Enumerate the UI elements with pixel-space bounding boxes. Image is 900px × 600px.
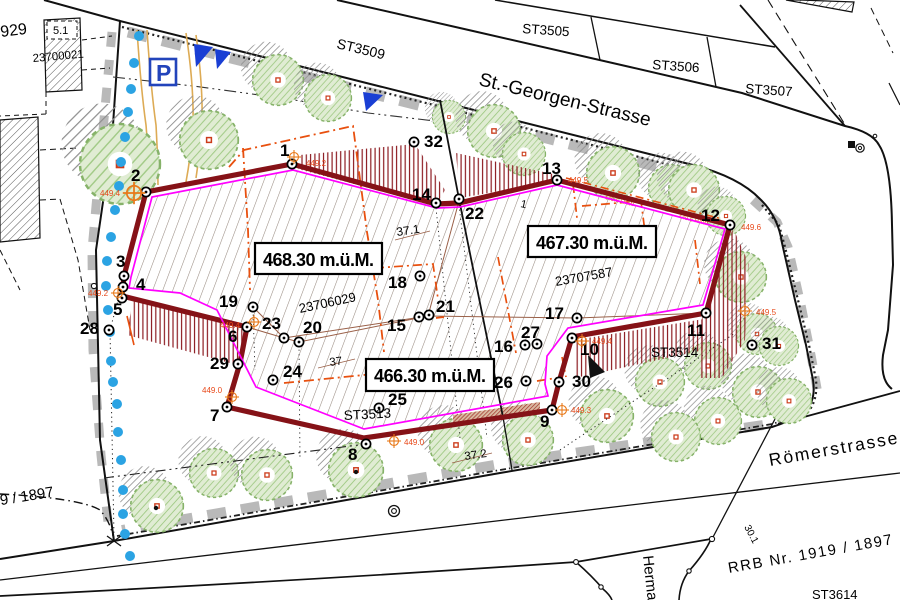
svg-text:30: 30 [572, 372, 591, 391]
svg-text:18: 18 [388, 273, 407, 292]
svg-text:11: 11 [687, 321, 705, 340]
svg-text:467.30 m.ü.M.: 467.30 m.ü.M. [536, 233, 648, 253]
svg-text:468.30 m.ü.M.: 468.30 m.ü.M. [263, 250, 374, 270]
svg-text:28: 28 [80, 319, 99, 338]
svg-text:449.3: 449.3 [571, 406, 592, 415]
svg-text:29: 29 [210, 354, 229, 373]
svg-text:31: 31 [762, 334, 781, 353]
svg-text:449.4: 449.4 [220, 321, 241, 330]
svg-text:2: 2 [131, 166, 140, 185]
svg-text:5.1: 5.1 [53, 25, 68, 37]
svg-text:13: 13 [542, 159, 561, 178]
svg-text:26: 26 [494, 373, 513, 392]
svg-text:24: 24 [283, 362, 302, 381]
svg-text:8: 8 [348, 445, 357, 464]
svg-text:20: 20 [303, 318, 322, 337]
svg-text:ST3514: ST3514 [651, 345, 699, 360]
svg-text:22: 22 [465, 204, 484, 223]
svg-text:ST3513: ST3513 [343, 406, 391, 423]
svg-text:449.2: 449.2 [88, 289, 109, 298]
svg-text:929: 929 [0, 21, 28, 41]
svg-text:449.0: 449.0 [404, 438, 425, 447]
svg-text:27: 27 [521, 323, 540, 342]
svg-text:P: P [156, 60, 171, 86]
svg-text:14: 14 [412, 185, 431, 204]
svg-text:449.5: 449.5 [756, 308, 777, 317]
svg-text:15: 15 [387, 316, 406, 335]
svg-text:21: 21 [436, 297, 455, 316]
svg-text:32: 32 [424, 132, 443, 151]
svg-text:466.30 m.ü.M.: 466.30 m.ü.M. [374, 366, 486, 386]
svg-text:12: 12 [701, 206, 720, 225]
svg-text:37: 37 [329, 355, 343, 369]
svg-text:ST3614: ST3614 [812, 587, 858, 600]
svg-text:449.2: 449.2 [306, 159, 327, 168]
svg-text:449.0: 449.0 [202, 386, 223, 395]
svg-text:449.5: 449.5 [568, 176, 589, 185]
svg-text:449.4: 449.4 [592, 337, 613, 346]
svg-text:9: 9 [540, 412, 549, 431]
svg-text:449.4: 449.4 [100, 189, 121, 198]
svg-text:16: 16 [494, 337, 513, 356]
svg-text:23: 23 [262, 314, 281, 333]
svg-text:3: 3 [116, 252, 125, 271]
svg-text:4: 4 [136, 275, 146, 294]
svg-text:449.6: 449.6 [741, 223, 762, 232]
svg-text:17: 17 [545, 304, 564, 323]
svg-text:19: 19 [219, 292, 238, 311]
svg-text:25: 25 [388, 390, 407, 409]
svg-text:5: 5 [113, 300, 122, 319]
svg-text:7: 7 [210, 406, 219, 425]
